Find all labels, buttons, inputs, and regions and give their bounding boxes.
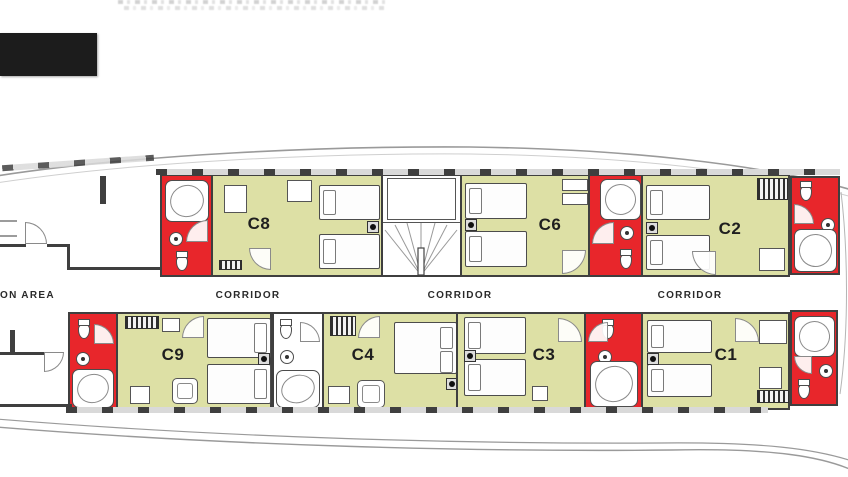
pillow [323, 239, 336, 264]
pillow [651, 369, 664, 392]
bed [319, 234, 380, 269]
wall-stub [100, 176, 106, 204]
door-arc [558, 318, 582, 342]
cabin-label-c3: C3 [518, 345, 570, 365]
bed [646, 185, 710, 220]
bed [465, 231, 527, 267]
luggage-rack [757, 178, 788, 200]
nightstand-lamp [258, 353, 270, 365]
luggage-rack [219, 260, 242, 270]
sink [280, 350, 294, 364]
cabin-label-c6: C6 [524, 215, 576, 235]
nightstand-lamp [647, 353, 659, 365]
toilet [800, 186, 812, 201]
cabin-label-c4: C4 [337, 345, 389, 365]
door-arc [358, 316, 380, 338]
door-arc [735, 318, 759, 342]
pillow [468, 364, 481, 391]
luggage-rack [757, 390, 789, 403]
desk [532, 386, 548, 401]
bed [207, 364, 271, 404]
chair [172, 378, 198, 404]
wardrobe [562, 179, 588, 191]
desk [328, 386, 350, 404]
door-arc [794, 356, 812, 374]
pillow [440, 351, 453, 373]
cropped-caption-line-1 [118, 0, 390, 4]
toilet [798, 384, 810, 399]
pillow [469, 188, 482, 214]
chair [357, 380, 385, 408]
cabin-label-c1: C1 [700, 345, 752, 365]
pillow [323, 190, 336, 215]
nightstand-lamp [367, 221, 379, 233]
pillow [254, 369, 267, 399]
wardrobe [287, 180, 312, 202]
luggage-rack [330, 316, 356, 336]
toilet [176, 256, 188, 271]
door-arc [794, 204, 814, 224]
cropped-caption-line-2 [124, 6, 384, 10]
area-label: ON AREA [0, 290, 46, 301]
bottom-window-band [66, 407, 768, 413]
pillow [650, 190, 663, 215]
sink [620, 226, 634, 240]
desk [224, 185, 247, 213]
black-cover-box [0, 33, 97, 76]
corridor-label-2: CORRIDOR [420, 290, 500, 301]
desk [759, 248, 785, 271]
pillow [651, 325, 664, 348]
top-window-band [156, 169, 840, 175]
bed [207, 318, 271, 358]
pillow [650, 240, 663, 265]
door-arc [588, 322, 608, 342]
bathroom-top-middle [588, 174, 643, 277]
bathroom-bottom-left [68, 312, 118, 410]
wardrobe [562, 193, 588, 205]
door-arc [300, 322, 320, 342]
bathtub [165, 180, 209, 222]
bathroom-bottom-middle [272, 312, 324, 410]
toilet [620, 254, 632, 269]
door-arc [94, 324, 114, 344]
bathtub [590, 361, 638, 407]
double-bed [394, 322, 457, 374]
bed [465, 183, 527, 219]
bed [464, 317, 526, 354]
wall-segment [67, 267, 162, 270]
door-arc [249, 248, 271, 270]
luggage-rack [125, 316, 159, 329]
bathroom-top-left [160, 174, 213, 277]
desk [130, 386, 150, 404]
stairwell [381, 174, 462, 277]
sink [169, 232, 183, 246]
door-arc [182, 316, 204, 338]
sink [76, 352, 90, 366]
bathroom-bottom-far-right [790, 310, 838, 406]
wardrobe [162, 318, 180, 332]
bed [319, 185, 380, 220]
nightstand-lamp [465, 219, 477, 231]
pillow [440, 327, 453, 349]
bathtub [794, 316, 835, 357]
corridor-label-1: CORRIDOR [208, 290, 288, 301]
toilet [280, 324, 292, 339]
bathtub [600, 179, 641, 220]
cabin-label-c8: C8 [233, 214, 285, 234]
bed [647, 364, 712, 397]
cabin-label-c2: C2 [704, 219, 756, 239]
pillow [469, 236, 482, 262]
desk [759, 320, 787, 344]
door-arc [592, 222, 614, 244]
stair-fan [383, 222, 460, 275]
stair-landing [387, 178, 456, 220]
wall-stub [10, 330, 15, 354]
bathroom-top-right [790, 176, 840, 275]
door-arc [186, 220, 208, 242]
cabin-label-c9: C9 [147, 345, 199, 365]
bathtub [276, 370, 320, 408]
nightstand-lamp [464, 350, 476, 362]
corridor-label-3: CORRIDOR [650, 290, 730, 301]
pillow [254, 323, 267, 353]
bathroom-bottom-right-1 [584, 312, 643, 410]
door-arc [562, 250, 586, 274]
pillow [468, 322, 481, 349]
wall-segment [0, 352, 44, 355]
wall-segment [0, 404, 72, 407]
sink [819, 364, 833, 378]
wardrobe [759, 367, 782, 389]
door-arc [692, 251, 716, 275]
bed [464, 359, 526, 396]
toilet [78, 324, 90, 339]
deck-plan: C8 C6 C2 C9 C4 C3 C1 ON AREA CORRIDOR CO… [0, 0, 848, 477]
bathtub [794, 229, 837, 272]
wall-segment [0, 244, 26, 247]
nightstand-lamp [646, 222, 658, 234]
bathtub [72, 369, 114, 408]
